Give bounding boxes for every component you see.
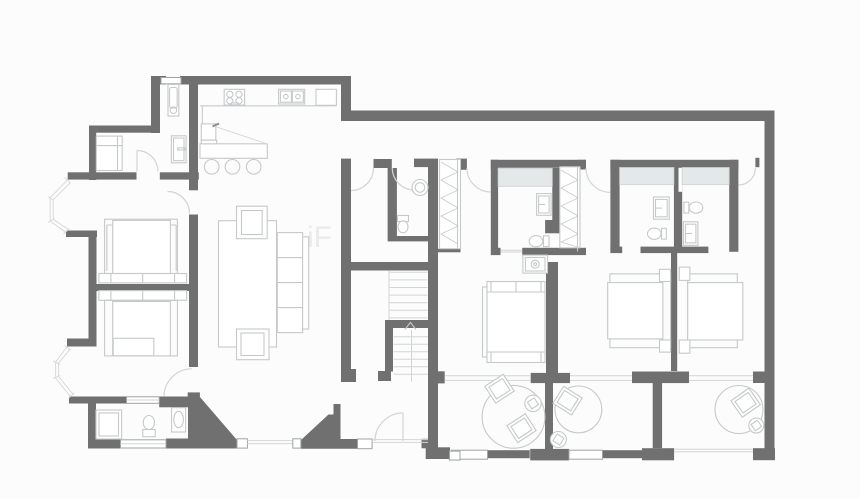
svg-text:iF: iF <box>307 221 332 254</box>
